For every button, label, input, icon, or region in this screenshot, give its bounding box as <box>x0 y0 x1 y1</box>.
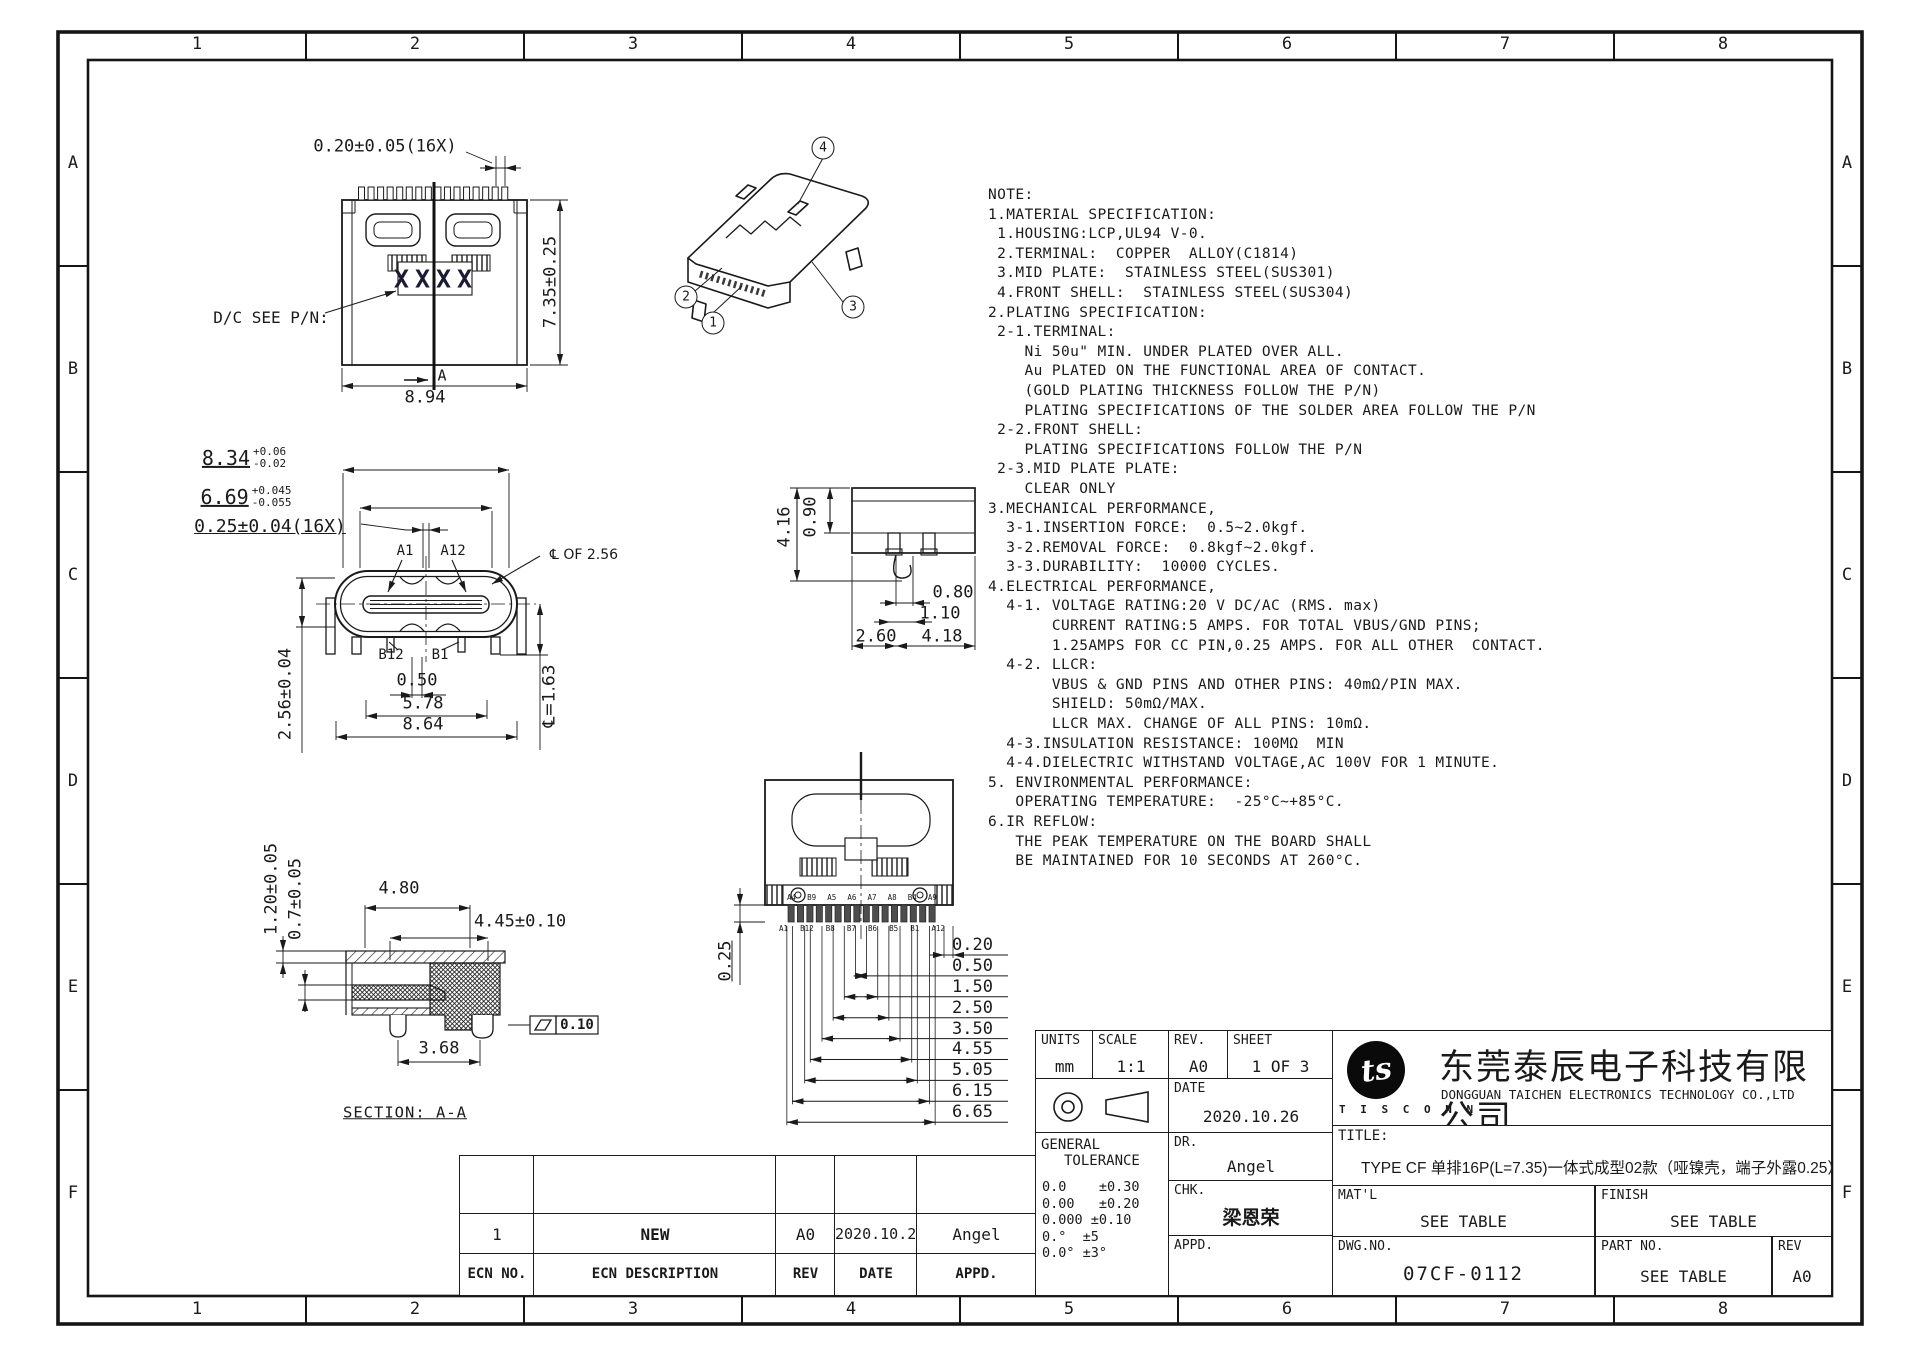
part-no-label: PART NO. <box>1601 1239 1664 1254</box>
third-angle-projection-icon <box>1044 1085 1164 1129</box>
list-item: C <box>60 472 86 678</box>
list-item: C <box>1834 472 1860 678</box>
list-item: A1 <box>779 924 788 933</box>
matl-label: MAT'L <box>1338 1188 1377 1203</box>
dim-1-20: 1.20±0.05 <box>264 843 281 935</box>
dim-2-60: 2.60 <box>856 629 897 646</box>
ecn-rev-value: A0 <box>776 1225 835 1244</box>
general-tolerance-label-1: GENERAL <box>1041 1137 1100 1153</box>
date-code-marking: XXXX <box>394 267 478 292</box>
dim-3-68: 3.68 <box>419 1041 460 1058</box>
dim-2-56: 2.56±0.04 <box>278 648 295 740</box>
list-item: 4 <box>742 34 960 58</box>
list-item: A8 <box>888 893 897 902</box>
finish-label: FINISH <box>1601 1188 1648 1203</box>
list-item: 3 <box>524 1299 742 1322</box>
chk-value: 梁恩荣 <box>1169 1203 1333 1230</box>
rev2-label: REV <box>1778 1239 1801 1254</box>
ecn-description-value: NEW <box>534 1225 776 1244</box>
pin-a12-label: A12 <box>440 544 465 558</box>
flatness-value: 0.10 <box>560 1018 594 1032</box>
dim-6-69-tol-dn: -0.055 <box>252 497 292 509</box>
list-item: 3 <box>524 34 742 58</box>
drawing-title: TYPE CF 单排16P(L=7.35)一体式成型02款（哑镍壳，端子外露0.… <box>1361 1156 1843 1178</box>
dr-value: Angel <box>1169 1157 1333 1176</box>
list-item: A9 <box>928 893 937 902</box>
general-tolerance-label-2: TOLERANCE <box>1064 1153 1140 1169</box>
appd-label: APPD. <box>1174 1238 1213 1253</box>
pin-labels-bottom-row: A1B12B8B7B6B5B1A12 <box>779 924 945 933</box>
list-item: B1 <box>910 924 919 933</box>
list-item: F <box>1834 1090 1860 1296</box>
list-item: B8 <box>826 924 835 933</box>
sheet-value: 1 OF 3 <box>1228 1057 1333 1076</box>
ecn-appd-value: Angel <box>917 1225 1036 1244</box>
drawing-sheet: 12345678 12345678 ABCDEF ABCDEF NOTE: 1.… <box>0 0 1920 1356</box>
ecn-no-header: ECN NO. <box>460 1266 534 1282</box>
dim-pin-width-front: 0.25±0.04(16X) <box>194 518 346 536</box>
list-item: A5 <box>827 893 836 902</box>
list-item: 5.05 <box>952 1061 1022 1082</box>
dim-0-25-bottom: 0.25 <box>718 941 735 982</box>
ecn-appd-header: APPD. <box>917 1266 1036 1282</box>
rev-label: REV. <box>1174 1033 1205 1048</box>
dim-0-80: 0.80 <box>933 585 974 602</box>
list-item: A <box>1834 60 1860 266</box>
list-item: 5 <box>960 34 1178 58</box>
notes-text: NOTE: 1.MATERIAL SPECIFICATION: 1.HOUSIN… <box>988 186 1768 872</box>
ecn-rev-header: REV <box>776 1266 835 1282</box>
balloon-1: 1 <box>702 312 725 335</box>
list-item: 6 <box>1178 1299 1396 1322</box>
list-item: 6 <box>1178 34 1396 58</box>
balloon-4: 4 <box>812 137 835 160</box>
pin-b12-label: B12 <box>378 648 403 662</box>
finish-value: SEE TABLE <box>1596 1212 1831 1231</box>
dim-4-18: 4.18 <box>922 629 963 646</box>
list-item: B9 <box>807 893 816 902</box>
dim-height-top: 7.35±0.25 <box>543 236 560 328</box>
list-item: B6 <box>868 924 877 933</box>
dim-4-80: 4.80 <box>379 881 420 898</box>
dim-8-34-value: 8.34 <box>202 448 250 468</box>
dwg-no-label: DWG.NO. <box>1338 1239 1393 1254</box>
ecn-date-value: 2020.10.26 <box>835 1225 917 1243</box>
pin-b1-label: B1 <box>432 648 449 662</box>
list-item: B5 <box>889 924 898 933</box>
company-name-en: DONGGUAN TAICHEN ELECTRONICS TECHNOLOGY … <box>1441 1087 1795 1102</box>
list-item: B7 <box>847 924 856 933</box>
dim-8-34-tol-dn: -0.02 <box>253 458 286 470</box>
dwg-no-value: 07CF-0112 <box>1333 1263 1594 1285</box>
dim-0-50: 0.50 <box>397 673 438 690</box>
dim-4-16: 4.16 <box>777 507 794 548</box>
units-label: UNITS <box>1041 1033 1080 1048</box>
pin-labels-top-row: A4B9A5A6A7A8B4A9 <box>787 893 937 902</box>
date-label: DATE <box>1174 1081 1205 1096</box>
dim-1-10: 1.10 <box>920 606 961 623</box>
list-item: A <box>60 60 86 266</box>
dim-width-top: 8.94 <box>405 390 446 407</box>
dim-cl-1-63: ℄=1.63 <box>542 664 559 727</box>
pin-position-dims: 0.200.501.502.503.504.555.056.156.65 <box>952 936 1022 1124</box>
dc-see-pn-label: D/C SEE P/N: <box>213 310 329 326</box>
list-item: 1.50 <box>952 978 1022 999</box>
list-item: D <box>60 678 86 884</box>
list-item: E <box>1834 884 1860 1090</box>
list-item: 7 <box>1396 34 1614 58</box>
dim-pin-width-top: 0.20±0.05(16X) <box>313 139 456 156</box>
list-item: 1 <box>88 1299 306 1322</box>
list-item: 2 <box>306 34 524 58</box>
list-item: A6 <box>847 893 856 902</box>
zone-letters-right: ABCDEF <box>1834 60 1860 1296</box>
ecn-no-value: 1 <box>460 1225 534 1244</box>
list-item: 4.55 <box>952 1040 1022 1061</box>
list-item: B12 <box>800 924 814 933</box>
units-value: mm <box>1036 1057 1093 1076</box>
scale-label: SCALE <box>1098 1033 1137 1048</box>
ecn-date-header: DATE <box>835 1266 917 1282</box>
dim-8-64: 8.64 <box>403 717 444 734</box>
balloon-2: 2 <box>675 286 698 309</box>
title-label: TITLE: <box>1338 1128 1389 1144</box>
zone-numbers-top: 12345678 <box>88 34 1832 58</box>
part-no-value: SEE TABLE <box>1596 1267 1771 1286</box>
rev2-value: A0 <box>1773 1267 1831 1286</box>
list-item: 7 <box>1396 1299 1614 1322</box>
dim-5-78: 5.78 <box>403 696 444 713</box>
list-item: B <box>60 266 86 472</box>
tisconn-logo: ts <box>1347 1041 1405 1099</box>
list-item: 8 <box>1614 1299 1832 1322</box>
pin-a1-label: A1 <box>397 544 414 558</box>
list-item: B4 <box>908 893 917 902</box>
zone-numbers-bottom: 12345678 <box>88 1299 1832 1322</box>
list-item: 4 <box>742 1299 960 1322</box>
dim-4-45: 4.45±0.10 <box>474 914 566 931</box>
list-item: 3.50 <box>952 1020 1022 1041</box>
list-item: 0.20 <box>952 936 1022 957</box>
dim-0-90: 0.90 <box>803 497 820 538</box>
list-item: 8 <box>1614 34 1832 58</box>
centerline-of-label: ℄ OF 2.56 <box>550 548 618 562</box>
list-item: E <box>60 884 86 1090</box>
list-item: F <box>60 1090 86 1296</box>
dim-8-34: 8.34 +0.06-0.02 <box>202 446 286 470</box>
date-value: 2020.10.26 <box>1169 1107 1333 1126</box>
list-item: 2 <box>306 1299 524 1322</box>
tolerance-values: 0.0 ±0.30 0.00 ±0.20 0.000 ±0.10 0.° ±5 … <box>1042 1179 1140 1262</box>
dim-6-69-value: 6.69 <box>201 487 249 507</box>
list-item: 5 <box>960 1299 1178 1322</box>
chk-label: CHK. <box>1174 1183 1205 1198</box>
matl-value: SEE TABLE <box>1333 1212 1594 1231</box>
tisconn-logo-text: ts <box>1358 1051 1393 1090</box>
balloon-3: 3 <box>842 296 865 319</box>
rev-value: A0 <box>1169 1057 1228 1076</box>
dim-0-7: 0.7±0.05 <box>288 858 305 940</box>
list-item: 2.50 <box>952 999 1022 1020</box>
section-view-label: SECTION: A-A <box>343 1105 467 1121</box>
list-item: 1 <box>88 34 306 58</box>
ecn-description-header: ECN DESCRIPTION <box>534 1266 776 1282</box>
list-item: A12 <box>931 924 945 933</box>
dim-6-69: 6.69 +0.045-0.055 <box>201 485 292 509</box>
section-arrow-label: A <box>437 369 446 384</box>
list-item: A7 <box>868 893 877 902</box>
list-item: 0.50 <box>952 957 1022 978</box>
list-item: A4 <box>787 893 796 902</box>
list-item: 6.65 <box>952 1103 1022 1124</box>
list-item: D <box>1834 678 1860 884</box>
scale-value: 1:1 <box>1093 1057 1169 1076</box>
list-item: 6.15 <box>952 1082 1022 1103</box>
sheet-label: SHEET <box>1233 1033 1272 1048</box>
dr-label: DR. <box>1174 1135 1197 1150</box>
list-item: B <box>1834 266 1860 472</box>
zone-letters-left: ABCDEF <box>60 60 86 1296</box>
